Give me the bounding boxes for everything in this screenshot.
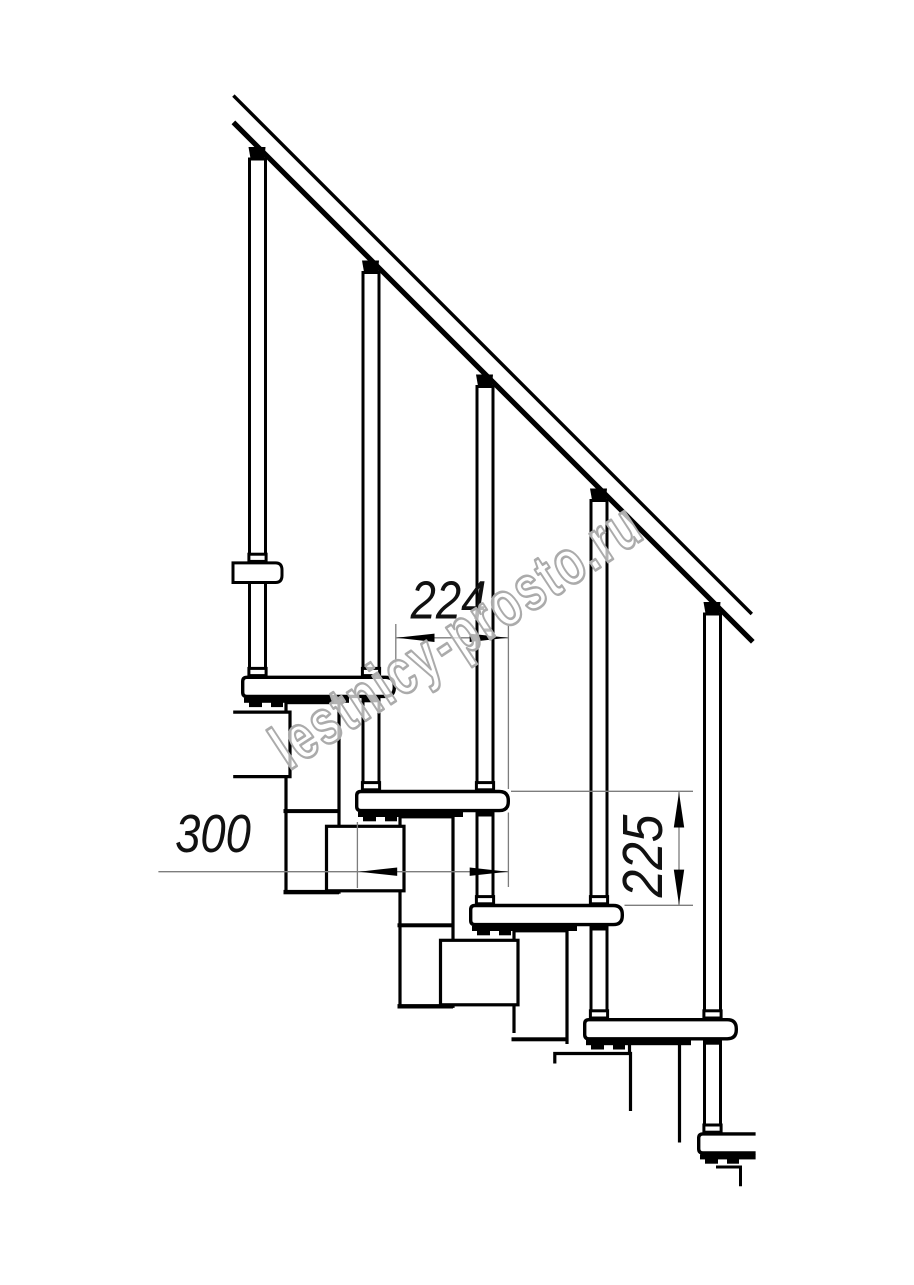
svg-text:300: 300: [175, 803, 251, 864]
svg-text:225: 225: [612, 814, 675, 898]
